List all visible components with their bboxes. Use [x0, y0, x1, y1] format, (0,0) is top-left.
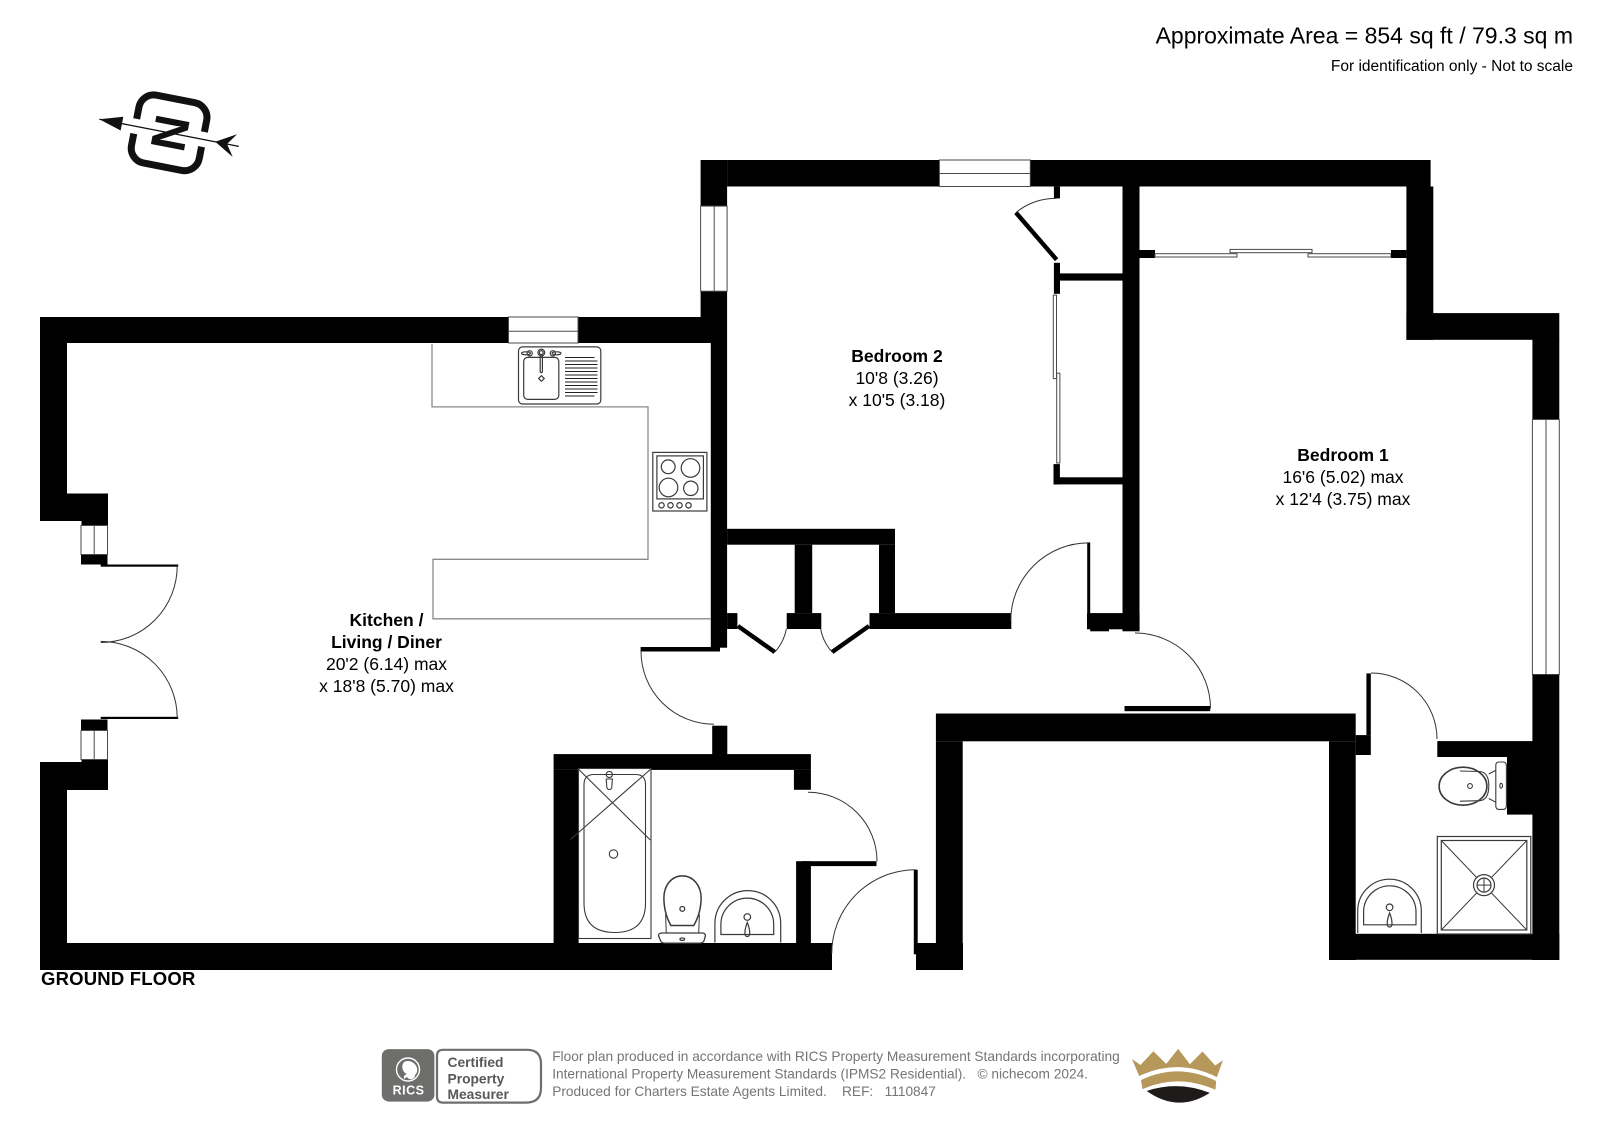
svg-text:For identification only - Not: For identification only - Not to scale [1331, 58, 1573, 75]
svg-text:GROUND FLOOR: GROUND FLOOR [41, 968, 196, 989]
svg-text:10'8 (3.26): 10'8 (3.26) [855, 368, 938, 388]
svg-text:Bedroom 1: Bedroom 1 [1297, 445, 1389, 465]
svg-text:RICS: RICS [393, 1083, 425, 1097]
svg-text:x 12'4 (3.75) max: x 12'4 (3.75) max [1276, 489, 1411, 509]
svg-text:Measurer: Measurer [448, 1087, 510, 1102]
svg-text:Approximate Area = 854 sq ft /: Approximate Area = 854 sq ft / 79.3 sq m [1156, 23, 1573, 49]
svg-text:Bedroom 2: Bedroom 2 [851, 346, 943, 366]
svg-text:20'2 (6.14) max: 20'2 (6.14) max [326, 654, 447, 674]
svg-text:x 18'8 (5.70) max: x 18'8 (5.70) max [319, 676, 454, 696]
svg-text:Certified: Certified [448, 1055, 504, 1070]
svg-text:Living / Diner: Living / Diner [331, 632, 442, 652]
svg-text:Floor plan produced in accorda: Floor plan produced in accordance with R… [552, 1049, 1120, 1064]
svg-text:Produced for Charters Estate A: Produced for Charters Estate Agents Limi… [552, 1084, 936, 1099]
svg-text:Kitchen /: Kitchen / [350, 610, 424, 630]
svg-text:International Property Measure: International Property Measurement Stand… [552, 1067, 1088, 1082]
svg-text:16'6 (5.02) max: 16'6 (5.02) max [1282, 467, 1403, 487]
svg-text:Property: Property [448, 1072, 505, 1087]
svg-text:x 10'5 (3.18): x 10'5 (3.18) [849, 390, 946, 410]
